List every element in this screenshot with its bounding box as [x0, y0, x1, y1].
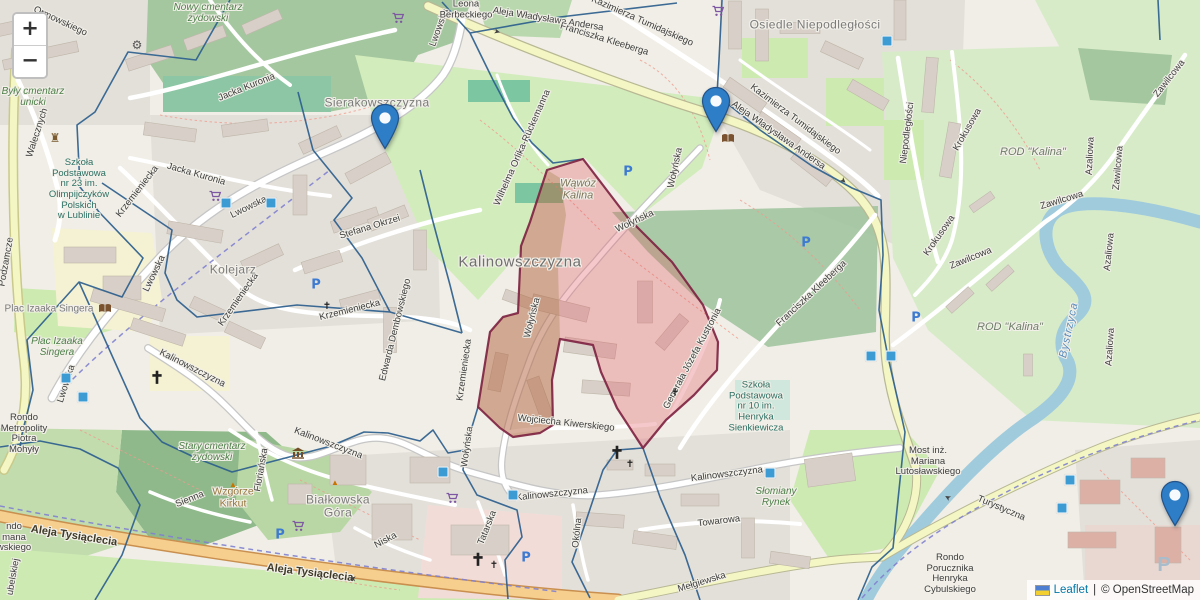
leaflet-link[interactable]: Leaflet — [1054, 584, 1089, 596]
ukraine-flag-icon — [1035, 585, 1050, 596]
zoom-out-button[interactable]: − — [14, 46, 46, 77]
osm-credit: © OpenStreetMap — [1101, 584, 1194, 596]
zoom-in-button[interactable]: + — [14, 14, 46, 46]
map-marker[interactable] — [370, 103, 400, 150]
attribution-bar: Leaflet | © OpenStreetMap — [1027, 580, 1200, 600]
attribution-separator: | — [1093, 584, 1096, 596]
map-marker[interactable] — [701, 86, 731, 133]
map-tiles — [0, 0, 1200, 600]
map-canvas[interactable]: Nowy cmentarz żydowskiOrmowskiegoWaleczn… — [0, 0, 1200, 600]
map-marker[interactable] — [1160, 480, 1190, 527]
zoom-control: + − — [12, 12, 48, 79]
